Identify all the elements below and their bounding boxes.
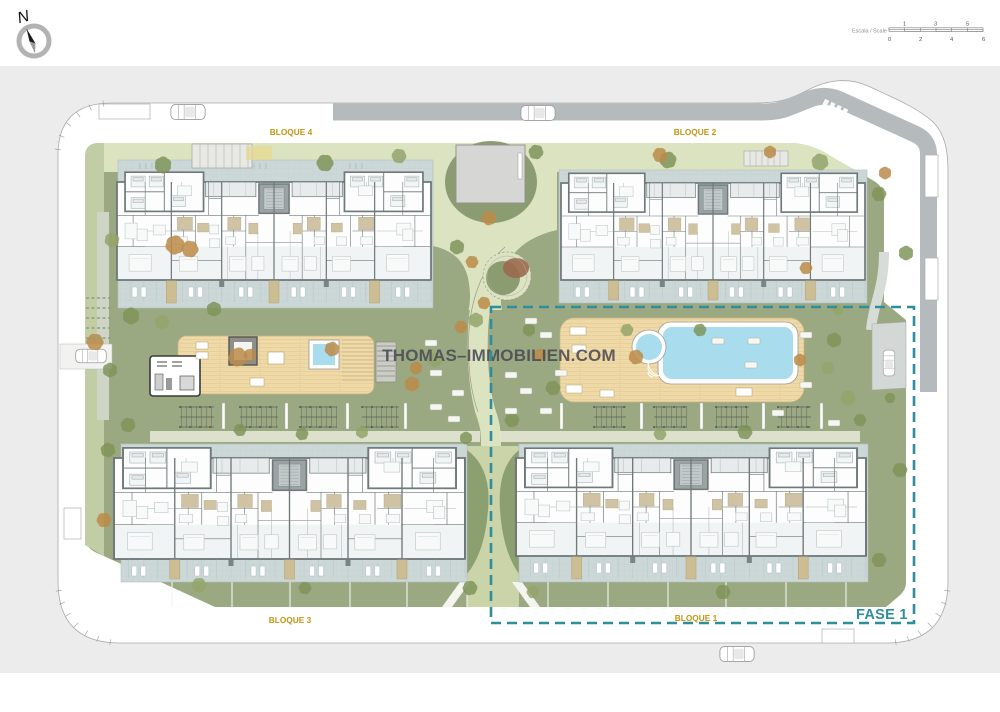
svg-text:BLOQUE 4: BLOQUE 4 (270, 127, 313, 137)
svg-text:THOMAS–IMMOBILIEN.COM: THOMAS–IMMOBILIEN.COM (382, 346, 616, 365)
svg-text:Escala / Scale: Escala / Scale (852, 29, 887, 35)
svg-text:6: 6 (982, 37, 985, 43)
svg-text:0: 0 (888, 37, 891, 43)
svg-text:2: 2 (919, 37, 922, 43)
svg-text:BLOQUE 1: BLOQUE 1 (675, 613, 718, 623)
svg-text:BLOQUE 3: BLOQUE 3 (269, 615, 312, 625)
svg-text:5: 5 (966, 22, 969, 28)
svg-text:1: 1 (903, 22, 906, 28)
svg-text:BLOQUE 2: BLOQUE 2 (674, 127, 717, 137)
svg-text:FASE 1: FASE 1 (856, 607, 908, 623)
svg-text:3: 3 (934, 22, 937, 28)
